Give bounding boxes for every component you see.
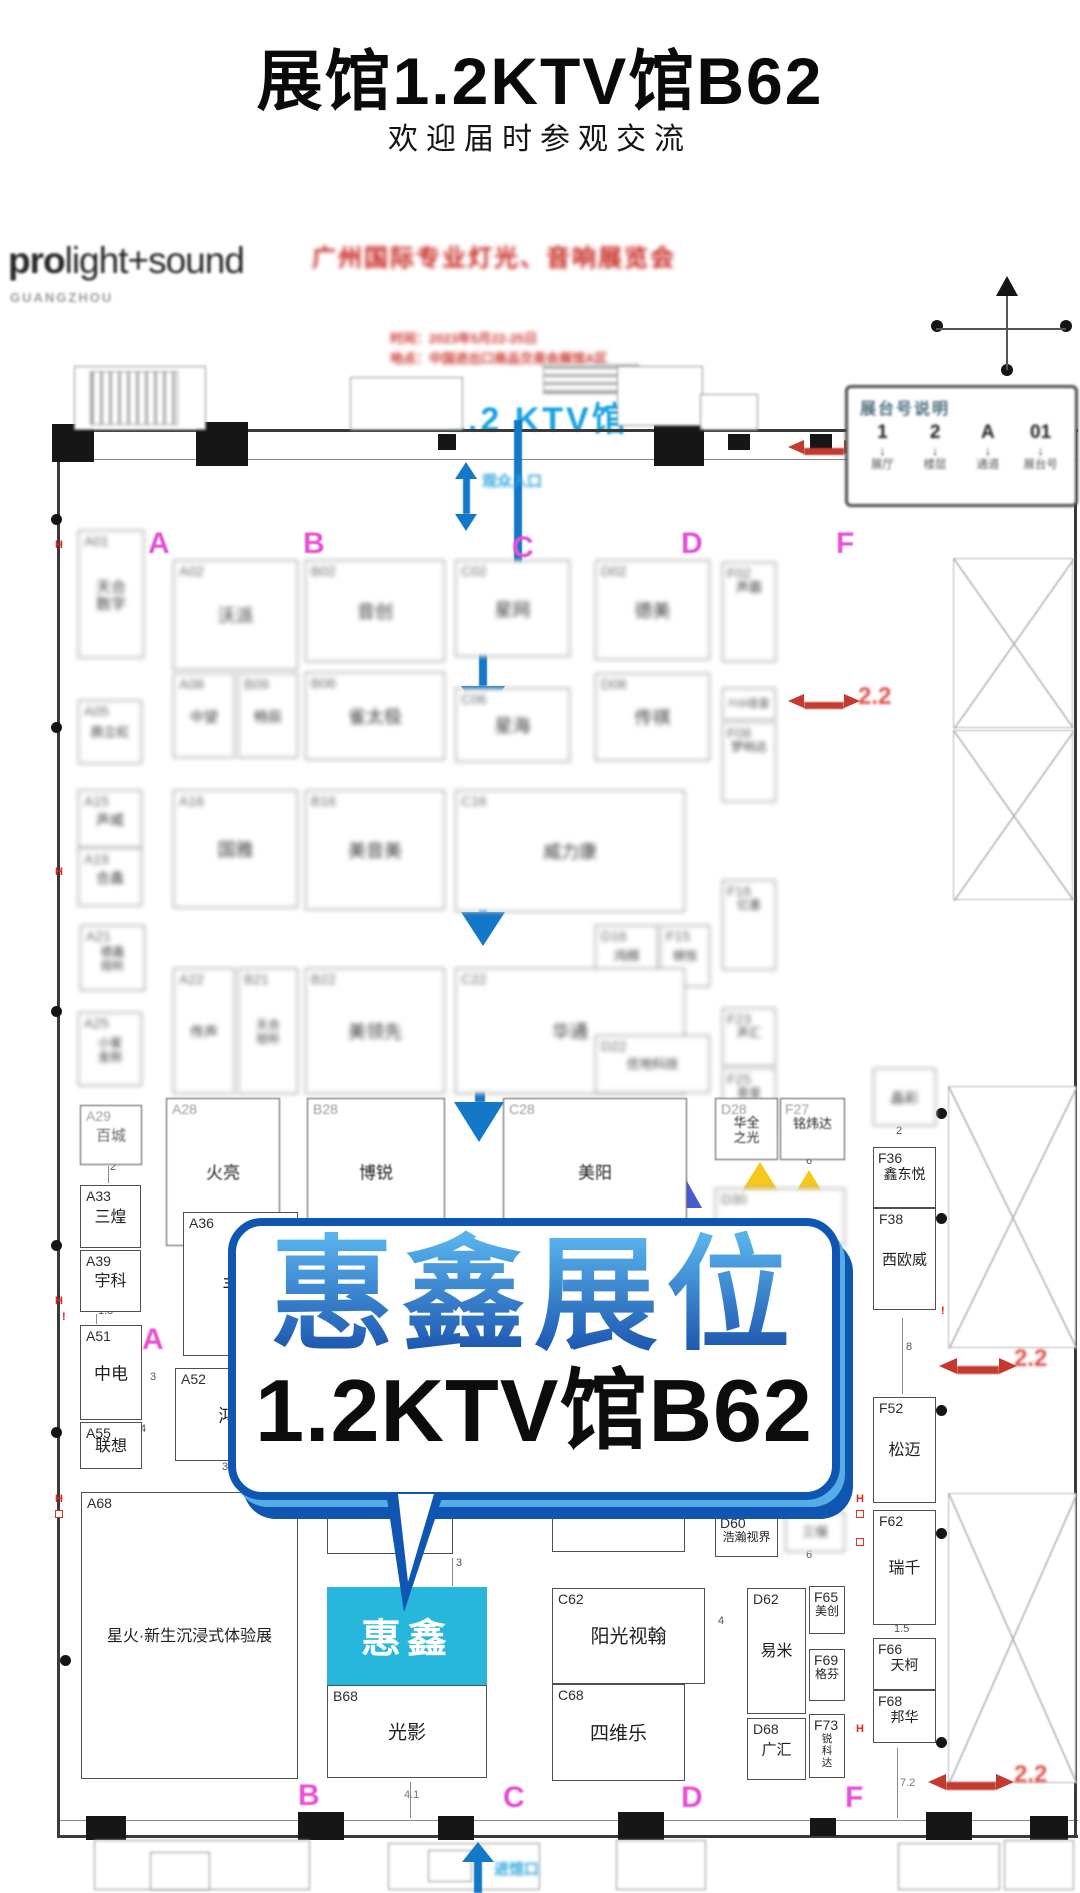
booth-id: F08 [723,723,775,741]
booth-name: 威力康 [456,842,684,863]
booth-F73: F73锐 科 达 [809,1714,845,1778]
booth-name: 声汇 [723,1027,775,1041]
wall-line [897,1748,898,1818]
booth-id: C06 [461,691,487,707]
dimension-label: 2 [896,1126,902,1138]
dimension-label: 3 [456,1558,462,1570]
pillar [1030,1816,1068,1840]
booth-number-legend: 展台号说明 1↓展厅2↓楼层A↓通道01↓展台号 [845,385,1078,507]
booth-id: D30 [721,1191,747,1207]
booth-A22: A22传声 [173,968,235,1094]
booth-A02: A02沃派 [173,560,298,670]
callout-booth-number: 1.2KTV馆B62 [236,1366,832,1456]
booth-name: 华全 之光 [716,1116,777,1146]
booth-D22: D22优地科技 [595,1035,710,1093]
booth-name: 中电 [81,1364,141,1384]
booth-C06: C06星海 [455,688,570,762]
booth-id: F38 [879,1211,903,1227]
wall-line [96,1314,97,1324]
compass-axis [936,328,1066,330]
event-title: 广州国际专业灯光、音响展览会 [312,238,676,273]
booth-name: 瑞千 [874,1559,935,1577]
booth-B22: B22美领先 [305,968,445,1094]
wall-dot [51,1006,62,1017]
booth-id: F69 [810,1650,844,1668]
booth-id: F16 [723,881,775,899]
booth-name: 易米 [748,1643,805,1661]
hall-heading: 1.2 KTV馆 [446,392,629,441]
booth-D28: D28华全 之光 [715,1098,778,1160]
wall-dot [51,1427,62,1438]
legend-col-展厅: 1↓展厅 [856,422,909,472]
hatched-structure [90,371,178,425]
booth-id: A21 [86,928,111,944]
event-date: 时间：2023年5月22-25日 [390,328,537,347]
booth-id: A01 [84,533,109,549]
booth-name: 星网 [456,599,569,620]
hydrant-marker: H [55,540,63,552]
logo-pro: pro [8,240,65,281]
booth-name: 音创 [306,602,444,623]
hydrant-marker: H [856,1494,864,1506]
booth-A16: A16国雅 [173,790,298,908]
arrowhead [788,694,804,708]
booth-id: B28 [313,1101,338,1117]
booth-id: C62 [558,1591,584,1607]
entrance-arrow-line [463,478,470,514]
booth-id: C28 [509,1101,535,1117]
aisle-letter: B [303,528,325,560]
booth-name: 声威 [79,812,141,828]
down-arrow-icon: ↓ [1014,444,1067,459]
booth-id: B22 [311,971,336,987]
legend-label: 通道 [962,459,1015,472]
booth-B68: B68光影 [327,1685,487,1778]
booth-name: 畅辰 [239,708,297,724]
pillar [728,434,750,450]
booth-id: F66 [874,1639,935,1657]
booth-A21: A21德鑫 视听 [80,925,145,991]
arrowhead [939,1358,957,1374]
booth-A08: A08中望 [173,673,235,758]
compass-dot [1060,320,1072,332]
wall-line [108,1166,109,1183]
booth-id: A22 [179,971,204,987]
fire-marker-box [856,1538,864,1546]
booth-id: A68 [87,1495,112,1511]
booth-name: 西欧威 [874,1251,935,1268]
pillar [438,434,456,450]
wall-dot [936,1737,947,1748]
booth-name: 天合 数字 [79,579,143,614]
fire-marker-box [55,1510,63,1518]
aisle-width-label: 2.2 [858,684,891,709]
booth-name: 棋恒 [661,950,709,964]
wall-dot [936,1528,947,1539]
booth-name: 浩瀚视界 [716,1531,777,1545]
booth-name: 鸿棋 [596,949,657,964]
booth-id: A39 [86,1253,111,1269]
prolight-sound-logo: prolight+sound [8,240,244,282]
booth-F62: F62瑞千 [873,1510,936,1625]
booth-B21: B21天合 视听 [238,968,298,1094]
booth-name: 广汇 [748,1741,805,1758]
dimension-label: 1.5 [894,1624,909,1636]
structure-box [616,1840,706,1890]
booth-id: A08 [179,676,204,692]
booth-C16: C16威力康 [455,790,685,912]
booth-name: 优地科技 [596,1057,709,1072]
booth-name: 美音美 [306,841,444,862]
down-arrow-icon: ↓ [909,444,962,459]
booth-id: C02 [461,563,487,579]
wall-dot [51,722,62,733]
booth-C62: C62阳光视翰 [552,1588,705,1684]
arrowhead [996,1774,1014,1790]
booth-id: B21 [244,971,269,987]
legend-col-通道: A↓通道 [962,422,1015,472]
booth-F36: F36鑫东悦 [873,1147,936,1208]
aisle-letter: F [836,528,854,560]
booth-D60: D60浩瀚视界 [715,1512,778,1557]
dimension-label: 3 [150,1372,156,1384]
booth-id: F73 [810,1715,844,1733]
booth-area [552,1498,685,1552]
aisle-letter: F [845,1782,863,1814]
legend-symbol: 01 [1014,422,1067,444]
booth-晶彩: 晶彩 [873,1068,936,1126]
page-title: 展馆1.2KTV馆B62 [0,28,1080,124]
booth-id: B16 [311,793,336,809]
wall-line [902,1318,903,1394]
aisle-letter: A [142,1324,164,1356]
left-wall [57,429,60,1838]
route-arrowhead [454,1102,504,1142]
gate-arrowhead [462,1842,494,1862]
booth-id: A33 [86,1188,111,1204]
structure-box [150,1852,210,1890]
aisle-letter: B [298,1780,320,1812]
booth-id: F68 [874,1691,935,1709]
aisle-width-label: 2.2 [1014,1762,1047,1787]
dimension-label: 7.2 [900,1778,915,1790]
booth-name: 松迈 [874,1442,935,1460]
booth-id: A16 [179,793,204,809]
arrowhead [788,440,804,454]
gate [953,558,1073,728]
booth-name: 德鑫 视听 [81,946,144,974]
booth-id: D68 [753,1721,779,1737]
legend-label: 楼层 [909,459,962,472]
booth-id: D22 [601,1038,627,1054]
wall-line [452,1558,453,1586]
bottom-wall-inner [57,1820,1078,1821]
booth-id: B02 [311,563,336,579]
booth-name: 光影 [328,1722,486,1744]
booth-name: 中望 [174,708,234,724]
logo-city: GUANGZHOU [10,290,113,305]
booth-name: 联想 [81,1437,141,1455]
booth-name: 德美 [596,601,709,622]
booth-F27: F27铭炜达 [780,1098,845,1160]
booth-B02: B02音创 [305,560,445,662]
hydrant-marker: H [856,1724,864,1736]
booth-name: 阳光视翰 [553,1626,704,1648]
booth-D08: D08传祺 [595,673,710,761]
pillar [86,1816,126,1840]
booth-name: 星海 [456,716,569,737]
structure-box [350,377,463,430]
booth-id: B68 [333,1688,358,1704]
fire-marker-box [856,1510,864,1518]
aisle-letter: D [681,1782,703,1814]
booth-name: 佳音 [747,698,769,711]
booth-id: F36 [874,1148,935,1166]
booth-name: 美阳 [504,1163,686,1183]
booth-id: A05 [84,703,109,719]
booth-id: F62 [879,1513,903,1529]
pillar [438,1816,474,1840]
booth-name: 天柯 [874,1657,935,1673]
booth-C68: C68四维乐 [552,1684,685,1781]
legend-symbol: 2 [909,422,962,444]
booth-F02: F02声霸 [722,562,776,662]
booth-id: F06 [729,698,748,710]
hydrant-marker: H [55,1296,63,1308]
booth-name: 国雅 [174,840,297,861]
booth-id: A19 [84,851,109,867]
aisle-arrow [804,448,844,455]
booth-A19: A19合鑫 [78,848,142,906]
legend-col-展台号: 01↓展台号 [1014,422,1067,472]
gate [953,730,1073,900]
booth-F52: F52松迈 [873,1397,936,1503]
pillar [810,1818,836,1836]
compass-north [996,276,1018,296]
wall-dot [60,1655,71,1666]
hydrant-marker: H [55,1494,63,1506]
booth-id: A02 [179,563,204,579]
booth-F23: F23声汇 [722,1008,776,1066]
booth-id: F23 [723,1009,775,1027]
booth-id: F15 [666,928,690,944]
legend-header: 展台号说明 [860,395,1075,419]
hydrant-marker: ! [62,1312,66,1324]
structure-box [617,366,703,426]
booth-F66: F66天柯 [873,1638,936,1690]
booth-name: 传祺 [596,708,709,729]
booth-A15: A15声威 [78,790,142,848]
aisle-letter: C [503,1782,525,1814]
legend-row: 1↓展厅2↓楼层A↓通道01↓展台号 [848,422,1075,472]
arrowhead [928,1774,946,1790]
aisle-width-label: 2.2 [1014,1346,1047,1371]
booth-id: D02 [601,563,627,579]
route-arrowhead [461,912,505,946]
callout-tail [398,1494,434,1582]
booth-id: A36 [189,1215,214,1231]
booth-id: C22 [461,971,487,987]
booth-name: 百城 [81,1127,141,1144]
booth-B16: B16美音美 [305,790,445,910]
booth-D68: D68广汇 [747,1718,806,1780]
legend-symbol: 1 [856,422,909,444]
booth-id: C16 [461,793,487,809]
structure-box [700,394,758,430]
booth-A39: A39宇科 [80,1250,141,1312]
booth-三保: 三保 [785,1512,845,1552]
booth-id: A29 [86,1108,111,1124]
booth-id: A52 [181,1371,206,1387]
booth-D02: D02德美 [595,560,710,660]
page-subtitle: 欢迎届时参观交流 [0,114,1080,158]
booth-name: 晶彩 [874,1090,935,1106]
booth-id: D60 [716,1513,777,1531]
legend-col-楼层: 2↓楼层 [909,422,962,472]
gate-label: 进馆口 [494,1862,539,1878]
booth-F68: F68邦华 [873,1690,936,1743]
booth-id: D62 [753,1591,779,1607]
booth-name: 锐 科 达 [810,1733,844,1769]
aisle-arrow [957,1366,999,1374]
entrance-arrowhead [455,462,477,479]
legend-label: 展厅 [856,459,909,472]
booth-name: 惠鑫 [327,1616,487,1662]
structure-box [898,1843,1000,1890]
flyer-page: 展馆1.2KTV馆B62 欢迎届时参观交流 prolight+sound GUA… [0,0,1080,1893]
entrance-arrowhead [455,514,477,531]
aisle-letter: A [148,528,170,560]
booth-name: 雀太极 [306,707,444,728]
booth-name: 传声 [174,1024,234,1040]
booth-id: A28 [172,1101,197,1117]
booth-F65: F65美创 [809,1586,845,1634]
booth-A33: A33三煌 [80,1185,141,1248]
booth-name: 声霸 [723,581,775,596]
booth-F16: F16亿墨 [722,880,776,970]
compass-axis [1006,290,1008,370]
booth-F69: F69格芬 [809,1649,845,1701]
wall-dot [936,1213,947,1224]
booth-A05: A05鼎立虹 [78,700,142,764]
booth-A55: A55联想 [80,1422,142,1469]
aisle-letter: D [681,528,703,560]
hydrant-marker: H [55,867,63,879]
booth-B06: B06雀太极 [305,672,445,760]
booth-id: A15 [84,793,109,809]
booth-name: 格芬 [810,1668,844,1682]
down-arrow-icon: ↓ [962,444,1015,459]
booth-id: B06 [311,675,336,691]
legend-symbol: A [962,422,1015,444]
booth-name: 沃派 [174,606,297,627]
booth-id: D08 [601,676,627,692]
booth-A29: A29百城 [80,1105,142,1165]
callout-bubble: 惠鑫展位 1.2KTV馆B62 [228,1218,840,1500]
booth-F38: F38西欧威 [873,1208,936,1310]
booth-name: 四维乐 [553,1723,684,1745]
booth-name: 亿墨 [723,899,775,913]
hydrant-marker: ! [941,1306,945,1318]
booth-id: F02 [723,563,775,581]
dimension-label: 4.1 [404,1790,419,1802]
wall-dot [936,1405,947,1416]
booth-id: A25 [84,1015,109,1031]
booth-name: 邦华 [874,1709,935,1725]
aisle-arrow [946,1782,996,1790]
logo-rest: light+sound [65,240,244,281]
wall-dot [51,1240,62,1251]
booth-id: F65 [810,1587,844,1605]
booth-A25: A25小蜜 金刚 [78,1012,142,1086]
bottom-wall [57,1835,1078,1838]
booth-A51: A51中电 [80,1325,142,1420]
callout-booth-name: 惠鑫展位 [236,1230,832,1364]
dimension-label: 4 [718,1616,724,1628]
aisle-arrow [804,702,844,709]
booth-name: 宇科 [81,1273,140,1291]
booth-C02: C02星网 [455,560,570,657]
booth-name: 梦响达 [723,741,775,755]
compass-dot [931,320,943,332]
wall-dot [51,514,62,525]
booth-name: 铭炜达 [781,1117,844,1132]
pillar [926,1812,972,1840]
structure-box [1004,1840,1074,1890]
gate-arrow-line [474,1860,482,1893]
booth-name: 天合 视听 [239,1019,297,1047]
booth-id: F52 [879,1400,903,1416]
booth-name: 合鑫 [79,870,141,886]
booth-F08: F08梦响达 [722,722,776,802]
booth-name: 星火·新生沉浸式体验展 [82,1627,297,1645]
booth-name: 三煌 [81,1208,140,1226]
booth-id: B09 [244,676,269,692]
booth-id: D16 [601,928,627,944]
pillar [618,1812,664,1840]
gate [948,1086,1076,1348]
booth-A68: A68星火·新生沉浸式体验展 [81,1492,298,1779]
gate [948,1493,1076,1783]
booth-D62: D62易米 [747,1588,806,1714]
booth-id: F25 [723,1069,775,1087]
booth-name: 美创 [810,1605,844,1619]
booth-F06: F06佳音 [722,688,776,720]
booth-id: F27 [781,1099,844,1117]
booth-name: 鼎立虹 [79,725,141,740]
booth-name: 鑫东悦 [874,1166,935,1182]
pillar [298,1812,344,1840]
booth-name: 小蜜 金刚 [79,1037,141,1065]
booth-id: C68 [558,1687,584,1703]
booth-B09: B09畅辰 [238,673,298,758]
booth-A01: A01天合 数字 [78,530,144,658]
pillar [654,424,704,466]
booth-name: 博锐 [308,1163,444,1183]
entrance-label: 观众入口 [482,474,542,490]
booth-name: 美领先 [306,1022,444,1043]
legend-label: 展台号 [1014,459,1067,472]
aisle-letter: C [512,532,534,564]
booth-id: A51 [86,1328,111,1344]
booth-name: 火亮 [167,1163,279,1183]
wall-dot [936,1108,947,1119]
booth-name: 三保 [786,1525,844,1540]
dimension-label: 8 [906,1342,912,1354]
down-arrow-icon: ↓ [856,444,909,459]
